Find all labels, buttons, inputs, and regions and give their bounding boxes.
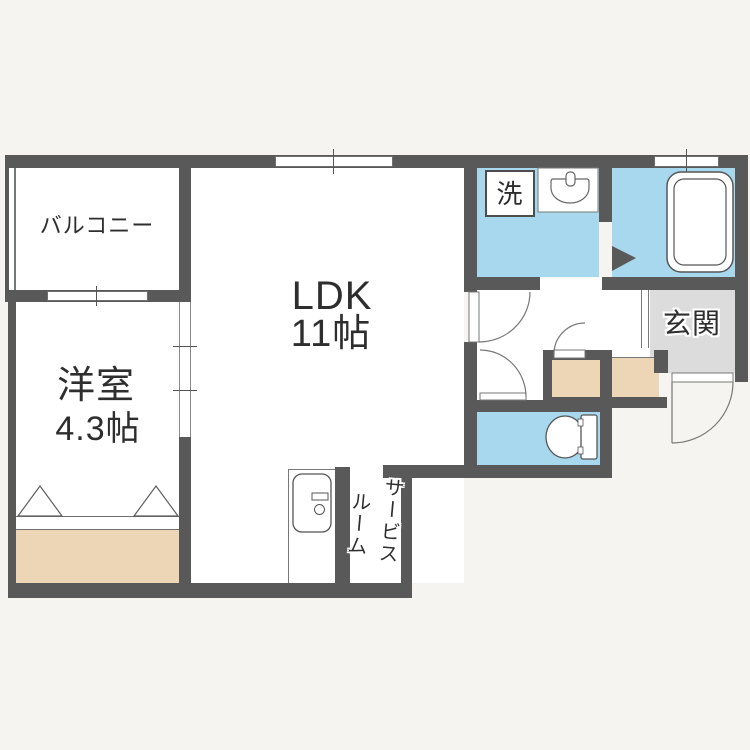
storage-door-arc <box>554 323 585 354</box>
ldk-size: 11帖 <box>291 315 371 353</box>
bath-door-triangle-icon <box>612 246 636 271</box>
balcony-label: バルコニー <box>40 215 155 237</box>
western-room-size: 4.3帖 <box>55 412 140 446</box>
closet-door-triangle-right <box>134 486 178 516</box>
washer-label: 洗 <box>496 181 523 207</box>
toilet-door-arc <box>480 350 526 397</box>
western-room-label: 洋室 <box>57 367 135 405</box>
bathtub-icon <box>667 172 733 272</box>
water-heater-dial <box>315 505 325 515</box>
ldk-label: LDK <box>292 276 373 316</box>
water-heater-icon <box>293 474 331 532</box>
floor-plan: 洗 バルコニー 洋室 4.3帖 LDK 11帖 玄関 サービス ルーム <box>0 0 750 750</box>
entrance-door-arc <box>672 382 733 443</box>
entrance-door-leaf <box>672 373 733 382</box>
toilet-tank-notch-bottom <box>578 447 583 454</box>
faucet-icon <box>566 172 575 186</box>
hall-door-arc <box>479 292 530 342</box>
toilet-door-leaf <box>480 393 526 400</box>
washer-box: 洗 <box>485 170 535 217</box>
storage-door-leaf <box>554 350 585 358</box>
water-heater-vent <box>312 493 328 500</box>
hall-door-leaf <box>469 292 479 342</box>
toilet-tank-notch-top <box>578 419 583 426</box>
toilet-tank-icon <box>581 415 597 459</box>
closet-door-triangle-left <box>18 486 62 516</box>
entrance-label: 玄関 <box>663 310 721 338</box>
